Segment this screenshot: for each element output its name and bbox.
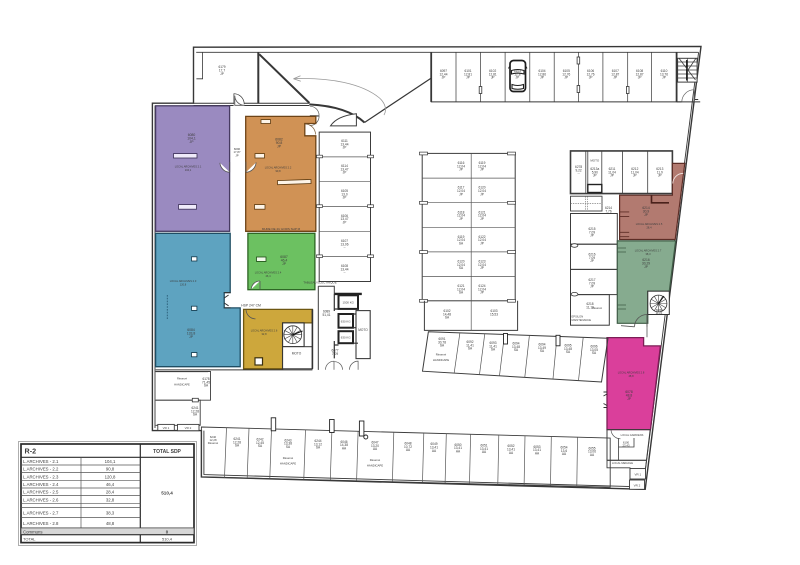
- svg-text:L.ARCHIVES - 2.7: L.ARCHIVES - 2.7: [23, 511, 59, 516]
- svg-text:L.ARCHIVES - 2.5: L.ARCHIVES - 2.5: [23, 490, 59, 495]
- svg-text:MURE DE 2U HORS SHP M: MURE DE 2U HORS SHP M: [262, 227, 301, 231]
- svg-text:LOCAL MENAGE: LOCAL MENAGE: [612, 461, 633, 465]
- svg-text:L.ARCHIVES - 2.8: L.ARCHIVES - 2.8: [23, 521, 59, 526]
- svg-text:L.ARCHIVES - 2.6: L.ARCHIVES - 2.6: [23, 497, 59, 502]
- svg-text:LOCAL GARDIENS: LOCAL GARDIENS: [621, 433, 644, 437]
- svg-text:VR 2: VR 2: [634, 483, 641, 487]
- svg-text:120,8: 120,8: [105, 474, 116, 479]
- svg-text:62147,76: 62147,76: [605, 206, 612, 213]
- svg-text:60777,09: 60777,09: [331, 349, 338, 356]
- svg-text:610023,43: 610023,43: [623, 441, 630, 448]
- svg-text:R-2: R-2: [25, 447, 37, 456]
- svg-text:38,3: 38,3: [106, 511, 115, 516]
- svg-text:TOTAL SDP: TOTAL SDP: [153, 449, 181, 455]
- svg-text:28,4: 28,4: [106, 490, 115, 495]
- svg-text:HSP 247 CM: HSP 247 CM: [241, 304, 261, 308]
- svg-text:608951,41: 608951,41: [323, 310, 331, 317]
- svg-text:L.ARCHIVES - 2.1: L.ARCHIVES - 2.1: [23, 459, 59, 464]
- svg-text:MOTO: MOTO: [358, 328, 368, 332]
- svg-text:90,8: 90,8: [106, 467, 115, 472]
- svg-text:32,8: 32,8: [106, 497, 115, 502]
- svg-text:630 KG: 630 KG: [341, 319, 352, 323]
- svg-text:MOTO: MOTO: [590, 159, 600, 163]
- svg-text:L.ARCHIVES - 2.4: L.ARCHIVES - 2.4: [23, 482, 59, 487]
- svg-text:510,4: 510,4: [162, 537, 173, 542]
- svg-text:TABLEAU ELECTRIQUE: TABLEAU ELECTRIQUE: [303, 280, 336, 284]
- svg-text:VR 2: VR 2: [185, 426, 192, 430]
- svg-text:630 KG: 630 KG: [341, 336, 352, 340]
- svg-text:1500 KG: 1500 KG: [342, 301, 354, 305]
- svg-text:VR 1: VR 1: [163, 426, 170, 430]
- svg-text:L.ARCHIVES - 2.2: L.ARCHIVES - 2.2: [23, 467, 59, 472]
- svg-text:46,4: 46,4: [106, 482, 115, 487]
- svg-text:104,1: 104,1: [105, 459, 116, 464]
- svg-text:510,4: 510,4: [161, 491, 173, 496]
- svg-text:Communs: Communs: [23, 529, 43, 534]
- svg-text:VR 1: VR 1: [634, 472, 641, 476]
- svg-text:48,8: 48,8: [106, 521, 115, 526]
- svg-text:Réservé: Réservé: [592, 306, 603, 310]
- svg-text:TOTAL: TOTAL: [23, 537, 36, 542]
- svg-text:MOTO: MOTO: [292, 352, 302, 356]
- svg-text:609911,21: 609911,21: [656, 308, 663, 315]
- svg-text:610315,53: 610315,53: [490, 309, 498, 316]
- svg-text:L.ARCHIVES - 2.3: L.ARCHIVES - 2.3: [23, 474, 59, 479]
